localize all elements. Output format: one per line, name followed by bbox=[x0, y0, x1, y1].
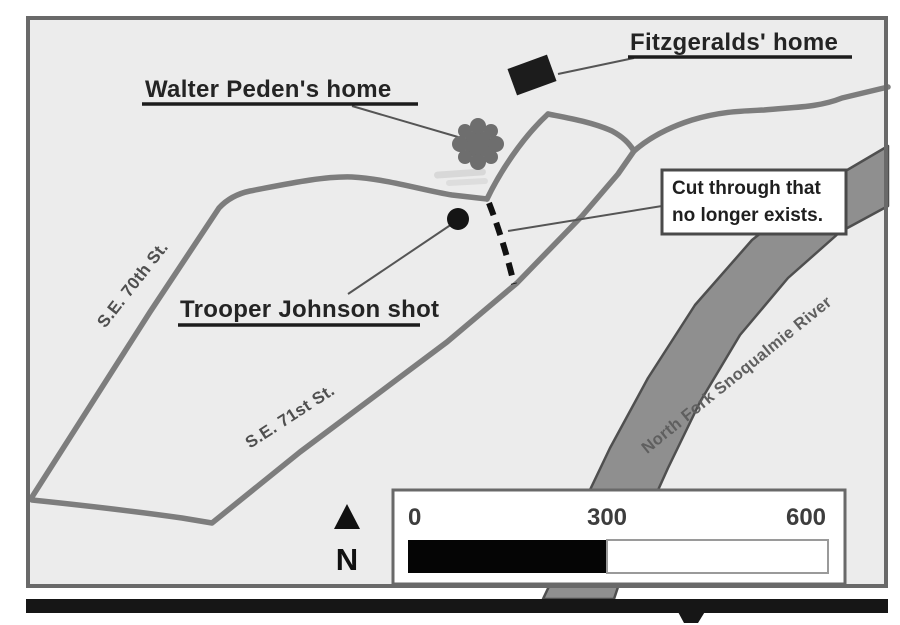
scale-tick-600: 600 bbox=[786, 504, 826, 531]
fitzgeralds-home-label: Fitzgeralds' home bbox=[630, 29, 838, 56]
dot-marker-icon bbox=[447, 208, 469, 230]
scale-bar-black-segment bbox=[408, 540, 607, 573]
trooper-shot-label: Trooper Johnson shot bbox=[180, 296, 439, 323]
map-canvas: Walter Peden's home Fitzgeralds' home Tr… bbox=[0, 0, 900, 625]
scale-bar-white-segment bbox=[607, 540, 828, 573]
cut-through-text-line2: no longer exists. bbox=[672, 205, 823, 226]
cut-through-callout: Cut through that no longer exists. bbox=[662, 170, 846, 234]
bottom-bar-tail bbox=[677, 610, 706, 623]
scale-tick-300: 300 bbox=[587, 504, 627, 531]
bottom-bar bbox=[26, 599, 888, 613]
scale-bar: 0 300 600 bbox=[393, 490, 845, 584]
scale-tick-0: 0 bbox=[408, 504, 421, 531]
map-figure: Walter Peden's home Fitzgeralds' home Tr… bbox=[0, 0, 900, 625]
north-letter: N bbox=[336, 542, 358, 577]
cut-through-text-line1: Cut through that bbox=[672, 178, 821, 199]
peden-home-label: Walter Peden's home bbox=[145, 76, 392, 103]
